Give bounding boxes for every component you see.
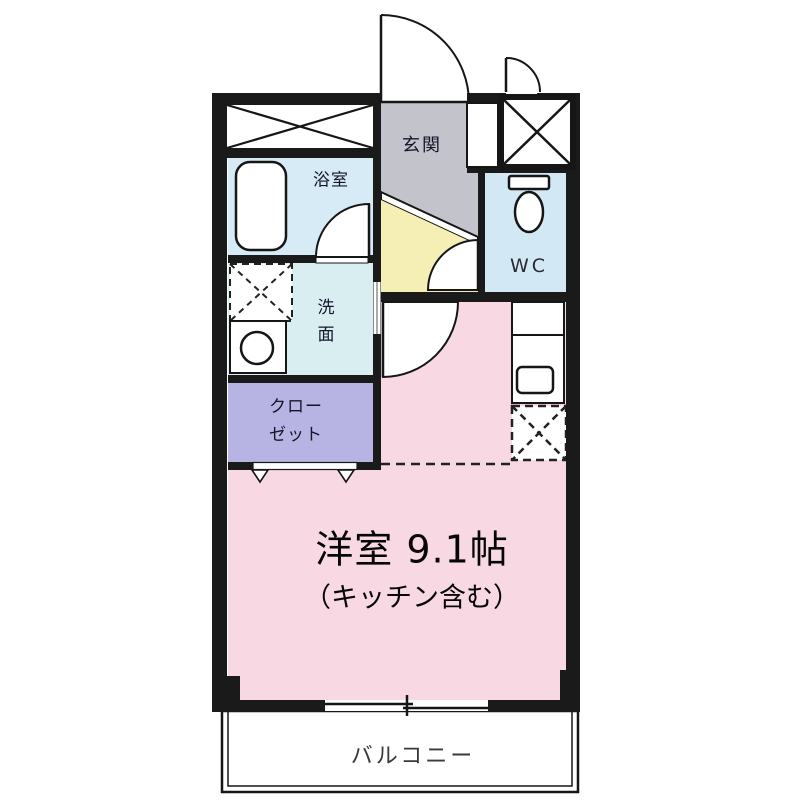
- stove: [517, 367, 553, 393]
- bathtub: [236, 162, 286, 250]
- shoe-cabinet: [467, 103, 498, 167]
- vanity-sink: [230, 321, 286, 373]
- closet-label: クロー ゼット: [269, 393, 323, 449]
- main-room-label: 洋室 9.1帖: [315, 519, 509, 574]
- wc-label: WC: [510, 255, 548, 277]
- kitchen-counter: [512, 302, 564, 403]
- washroom-label: 洗面: [315, 295, 337, 349]
- genkan-label: 玄関: [402, 131, 442, 157]
- main-room-sublabel: （キッチン含む）: [304, 576, 520, 615]
- meter-box: [501, 97, 573, 167]
- closet-label-line2: ゼット: [269, 421, 323, 449]
- bathroom-label: 浴室: [313, 166, 349, 191]
- washroom-sliding-door: [374, 282, 381, 334]
- floor-plan: 玄関 浴室 洗面 クロー ゼット WC 洋室 9.1帖 （キッチン含む） バルコ…: [0, 0, 800, 800]
- floor-plan-drawing: [0, 0, 800, 800]
- balcony-label: バルコニー: [351, 738, 476, 770]
- washing-machine-space: [230, 264, 292, 321]
- closet-label-line1: クロー: [269, 393, 323, 421]
- storage-box-top-left: [227, 105, 373, 148]
- refrigerator-space: [512, 406, 566, 460]
- toilet-tank: [509, 176, 549, 189]
- toilet-bowl: [515, 192, 543, 232]
